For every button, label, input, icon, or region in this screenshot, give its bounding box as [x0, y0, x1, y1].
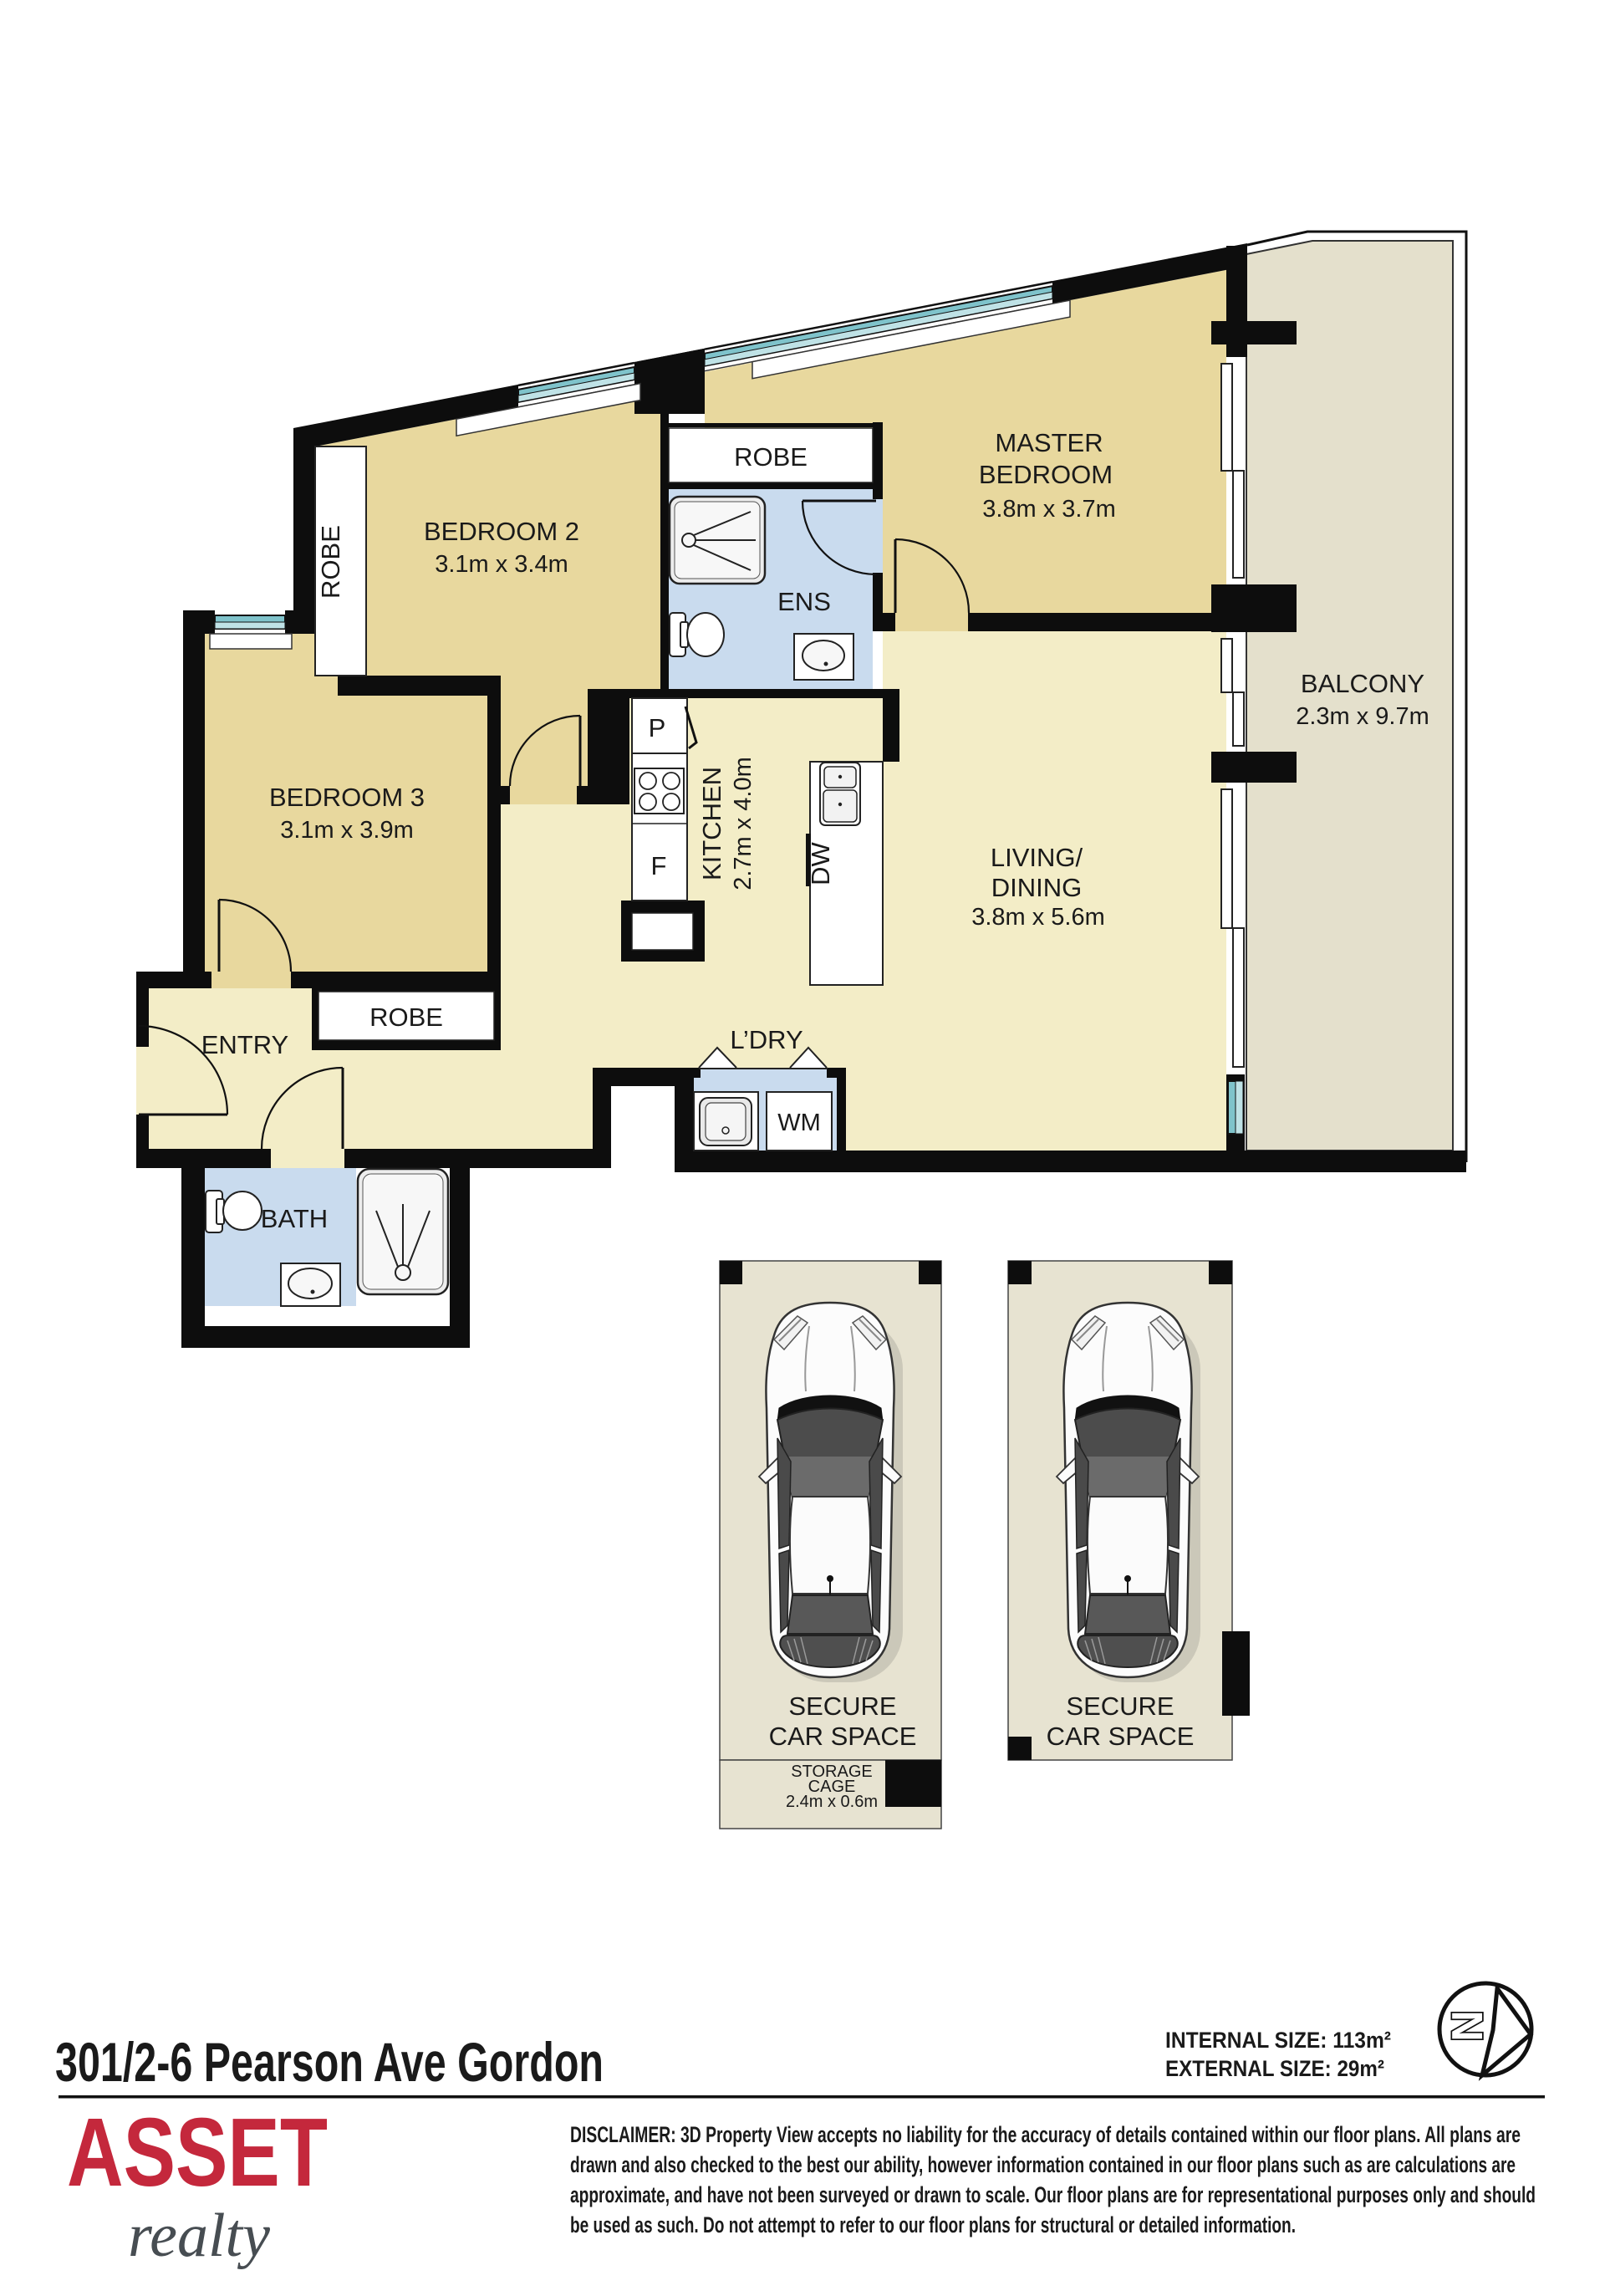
- svg-text:WM: WM: [777, 1110, 821, 1136]
- svg-text:DW: DW: [806, 841, 835, 885]
- svg-text:301/2-6 Pearson Ave Gordon: 301/2-6 Pearson Ave Gordon: [55, 2031, 604, 2093]
- svg-text:BATH: BATH: [261, 1204, 328, 1233]
- svg-text:CAR SPACE: CAR SPACE: [769, 1722, 917, 1751]
- svg-text:BALCONY: BALCONY: [1301, 669, 1424, 698]
- svg-text:ROBE: ROBE: [734, 442, 808, 472]
- svg-text:DISCLAIMER: 3D Property View a: DISCLAIMER: 3D Property View accepts no …: [570, 2122, 1521, 2147]
- svg-text:ROBE: ROBE: [316, 525, 345, 599]
- svg-text:BEDROOM 3: BEDROOM 3: [269, 783, 425, 812]
- svg-text:3.1m x 3.9m: 3.1m x 3.9m: [280, 817, 414, 844]
- svg-text:be used as such. Do not attemp: be used as such. Do not attempt to refer…: [570, 2212, 1296, 2237]
- svg-text:BEDROOM: BEDROOM: [979, 460, 1113, 489]
- svg-text:SECURE: SECURE: [788, 1691, 896, 1721]
- svg-text:2.4m x 0.6m: 2.4m x 0.6m: [786, 1793, 878, 1811]
- svg-text:3.1m x 3.4m: 3.1m x 3.4m: [435, 551, 568, 578]
- svg-text:3.8m x 3.7m: 3.8m x 3.7m: [982, 496, 1116, 523]
- svg-text:3.8m x 5.6m: 3.8m x 5.6m: [971, 904, 1105, 931]
- svg-text:CAR SPACE: CAR SPACE: [1047, 1722, 1195, 1751]
- svg-text:BEDROOM 2: BEDROOM 2: [424, 517, 579, 546]
- svg-text:MASTER: MASTER: [995, 428, 1103, 457]
- svg-text:ASSET: ASSET: [67, 2098, 328, 2207]
- svg-text:ENS: ENS: [777, 587, 831, 616]
- svg-text:L’DRY: L’DRY: [730, 1025, 802, 1054]
- svg-text:SECURE: SECURE: [1066, 1691, 1174, 1721]
- svg-text:LIVING/: LIVING/: [991, 843, 1083, 872]
- svg-text:KITCHEN: KITCHEN: [697, 767, 726, 880]
- svg-text:N: N: [1444, 2010, 1492, 2042]
- svg-text:F: F: [651, 851, 667, 880]
- svg-text:realty: realty: [128, 2202, 270, 2270]
- svg-text:DINING: DINING: [991, 873, 1083, 902]
- svg-text:ROBE: ROBE: [369, 1003, 443, 1032]
- svg-text:P: P: [649, 713, 666, 742]
- svg-text:INTERNAL SIZE: 113m²: INTERNAL SIZE: 113m²: [1165, 2028, 1391, 2053]
- svg-text:2.3m x 9.7m: 2.3m x 9.7m: [1296, 703, 1429, 730]
- svg-text:ENTRY: ENTRY: [201, 1030, 289, 1059]
- svg-text:EXTERNAL SIZE: 29m²: EXTERNAL SIZE: 29m²: [1165, 2056, 1384, 2081]
- svg-text:approximate, and have not been: approximate, and have not been surveyed …: [570, 2182, 1536, 2207]
- svg-text:drawn and also checked to the: drawn and also checked to the best our a…: [570, 2152, 1516, 2177]
- svg-text:2.7m x 4.0m: 2.7m x 4.0m: [730, 757, 757, 890]
